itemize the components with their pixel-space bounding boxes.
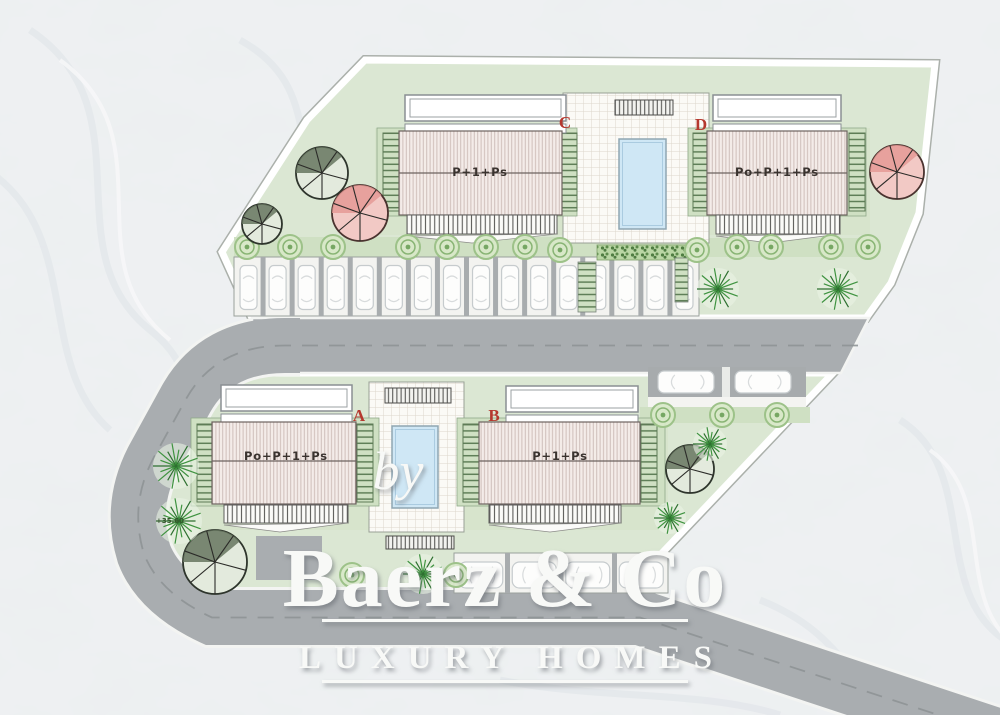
building-a-letter: A — [353, 406, 366, 425]
car — [269, 266, 286, 310]
bush — [396, 235, 420, 259]
building-b-letter: B — [488, 406, 499, 425]
roof — [212, 422, 356, 504]
watermark-by: by — [373, 441, 424, 501]
deck — [407, 215, 557, 234]
car — [240, 266, 257, 310]
building-d-letter: D — [695, 115, 707, 134]
car — [502, 266, 519, 310]
stall-divider — [551, 257, 556, 316]
stall-divider — [290, 257, 295, 316]
stairs-top — [385, 388, 451, 403]
bush — [819, 235, 843, 259]
deck — [489, 505, 621, 523]
car — [327, 266, 344, 310]
palm-tree — [697, 268, 739, 310]
building-d-floors: Po+P+1+Ps — [735, 165, 819, 179]
stall-divider — [609, 257, 614, 316]
stall-divider — [522, 257, 527, 316]
building-a-floors: Po+P+1+Ps — [244, 449, 328, 463]
stall-divider — [406, 257, 411, 316]
palm-tree — [654, 502, 686, 534]
car — [414, 266, 431, 310]
car — [385, 266, 402, 310]
car — [647, 266, 664, 310]
stairs-top — [615, 100, 673, 115]
bush — [725, 235, 749, 259]
stall-divider — [638, 257, 643, 316]
tree-pink — [870, 145, 924, 199]
tree-pink — [332, 185, 388, 241]
tree-round — [296, 147, 348, 199]
car — [473, 266, 490, 310]
bush — [321, 235, 345, 259]
bush — [651, 403, 675, 427]
watermark-rule-top — [322, 619, 688, 622]
building-c-letter: C — [559, 113, 571, 132]
watermark-rule-bottom — [322, 680, 688, 683]
bush — [759, 235, 783, 259]
watermark-brand: Baerz & Co — [283, 532, 728, 625]
building-c-floors: P+1+Ps — [452, 165, 508, 179]
building-c: P+1+Ps — [377, 95, 577, 243]
bush — [856, 235, 880, 259]
stall-divider — [493, 257, 498, 316]
elevation-marker: +35.60 — [156, 517, 184, 525]
deck — [716, 215, 840, 234]
stall-divider — [464, 257, 469, 316]
bush — [765, 403, 789, 427]
stall-divider — [377, 257, 382, 316]
bush — [548, 238, 572, 262]
car — [443, 266, 460, 310]
car — [658, 371, 714, 393]
bush — [710, 403, 734, 427]
car — [560, 266, 577, 310]
watermark-tagline: LUXURY HOMES — [299, 640, 725, 676]
palm-tree — [817, 268, 859, 310]
site-plan-drawing: P+1+Ps Po+P+1+Ps Po+P+1+Ps — [0, 0, 1000, 715]
site-plan-page: P+1+Ps Po+P+1+Ps Po+P+1+Ps — [0, 0, 1000, 715]
building-b-floors: P+1+Ps — [532, 449, 588, 463]
stairs-strip — [578, 262, 596, 312]
car — [298, 266, 315, 310]
roof — [479, 422, 640, 504]
car — [735, 371, 791, 393]
deck — [224, 505, 348, 523]
bush — [278, 235, 302, 259]
bush — [474, 235, 498, 259]
bush — [685, 238, 709, 262]
car — [618, 266, 635, 310]
tree-round — [242, 204, 282, 244]
bush — [513, 235, 537, 259]
car — [531, 266, 548, 310]
palm-tree — [153, 443, 199, 489]
bush — [435, 235, 459, 259]
pool-top — [619, 139, 666, 229]
stall-divider — [348, 257, 353, 316]
stall-divider — [261, 257, 266, 316]
stairs-side — [675, 258, 688, 302]
stall-divider — [667, 257, 672, 316]
car — [356, 266, 373, 310]
stall-divider — [435, 257, 440, 316]
stall-divider — [319, 257, 324, 316]
palm-tree — [693, 427, 727, 461]
